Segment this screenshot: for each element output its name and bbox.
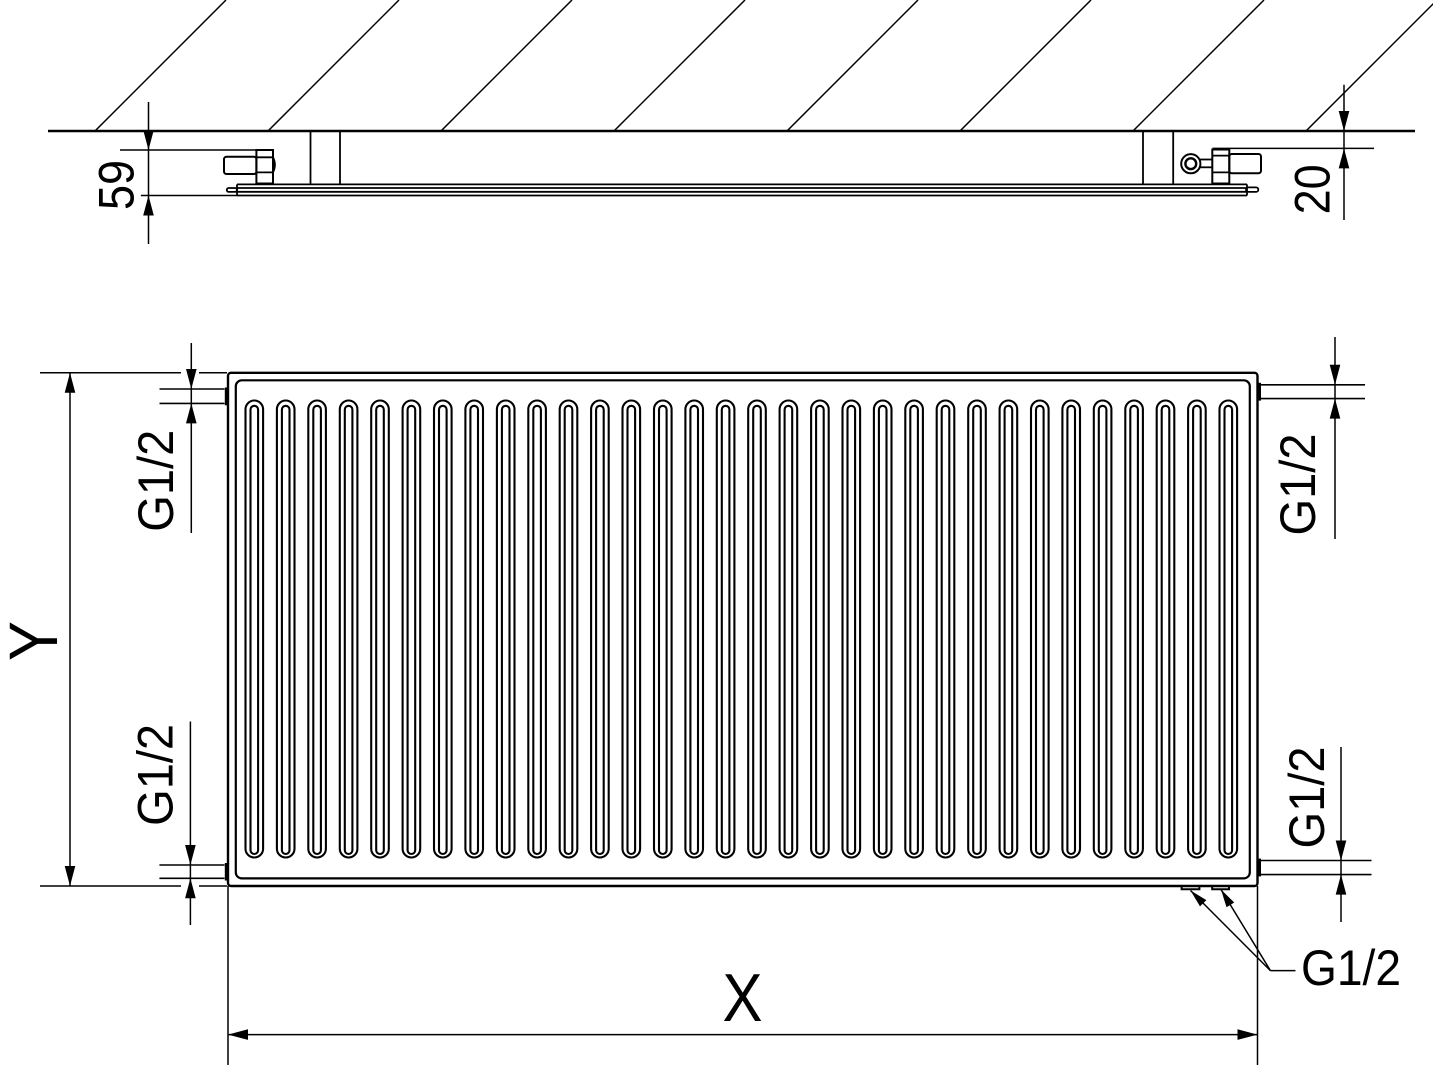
svg-text:G1/2: G1/2 bbox=[1301, 940, 1401, 996]
svg-text:59: 59 bbox=[88, 160, 144, 210]
svg-text:20: 20 bbox=[1285, 164, 1341, 214]
svg-text:G1/2: G1/2 bbox=[128, 724, 184, 826]
svg-text:G1/2: G1/2 bbox=[1279, 747, 1335, 849]
svg-text:G1/2: G1/2 bbox=[128, 430, 184, 532]
svg-text:G1/2: G1/2 bbox=[1270, 434, 1326, 536]
svg-text:Y: Y bbox=[0, 621, 72, 661]
svg-text:X: X bbox=[723, 960, 763, 1036]
